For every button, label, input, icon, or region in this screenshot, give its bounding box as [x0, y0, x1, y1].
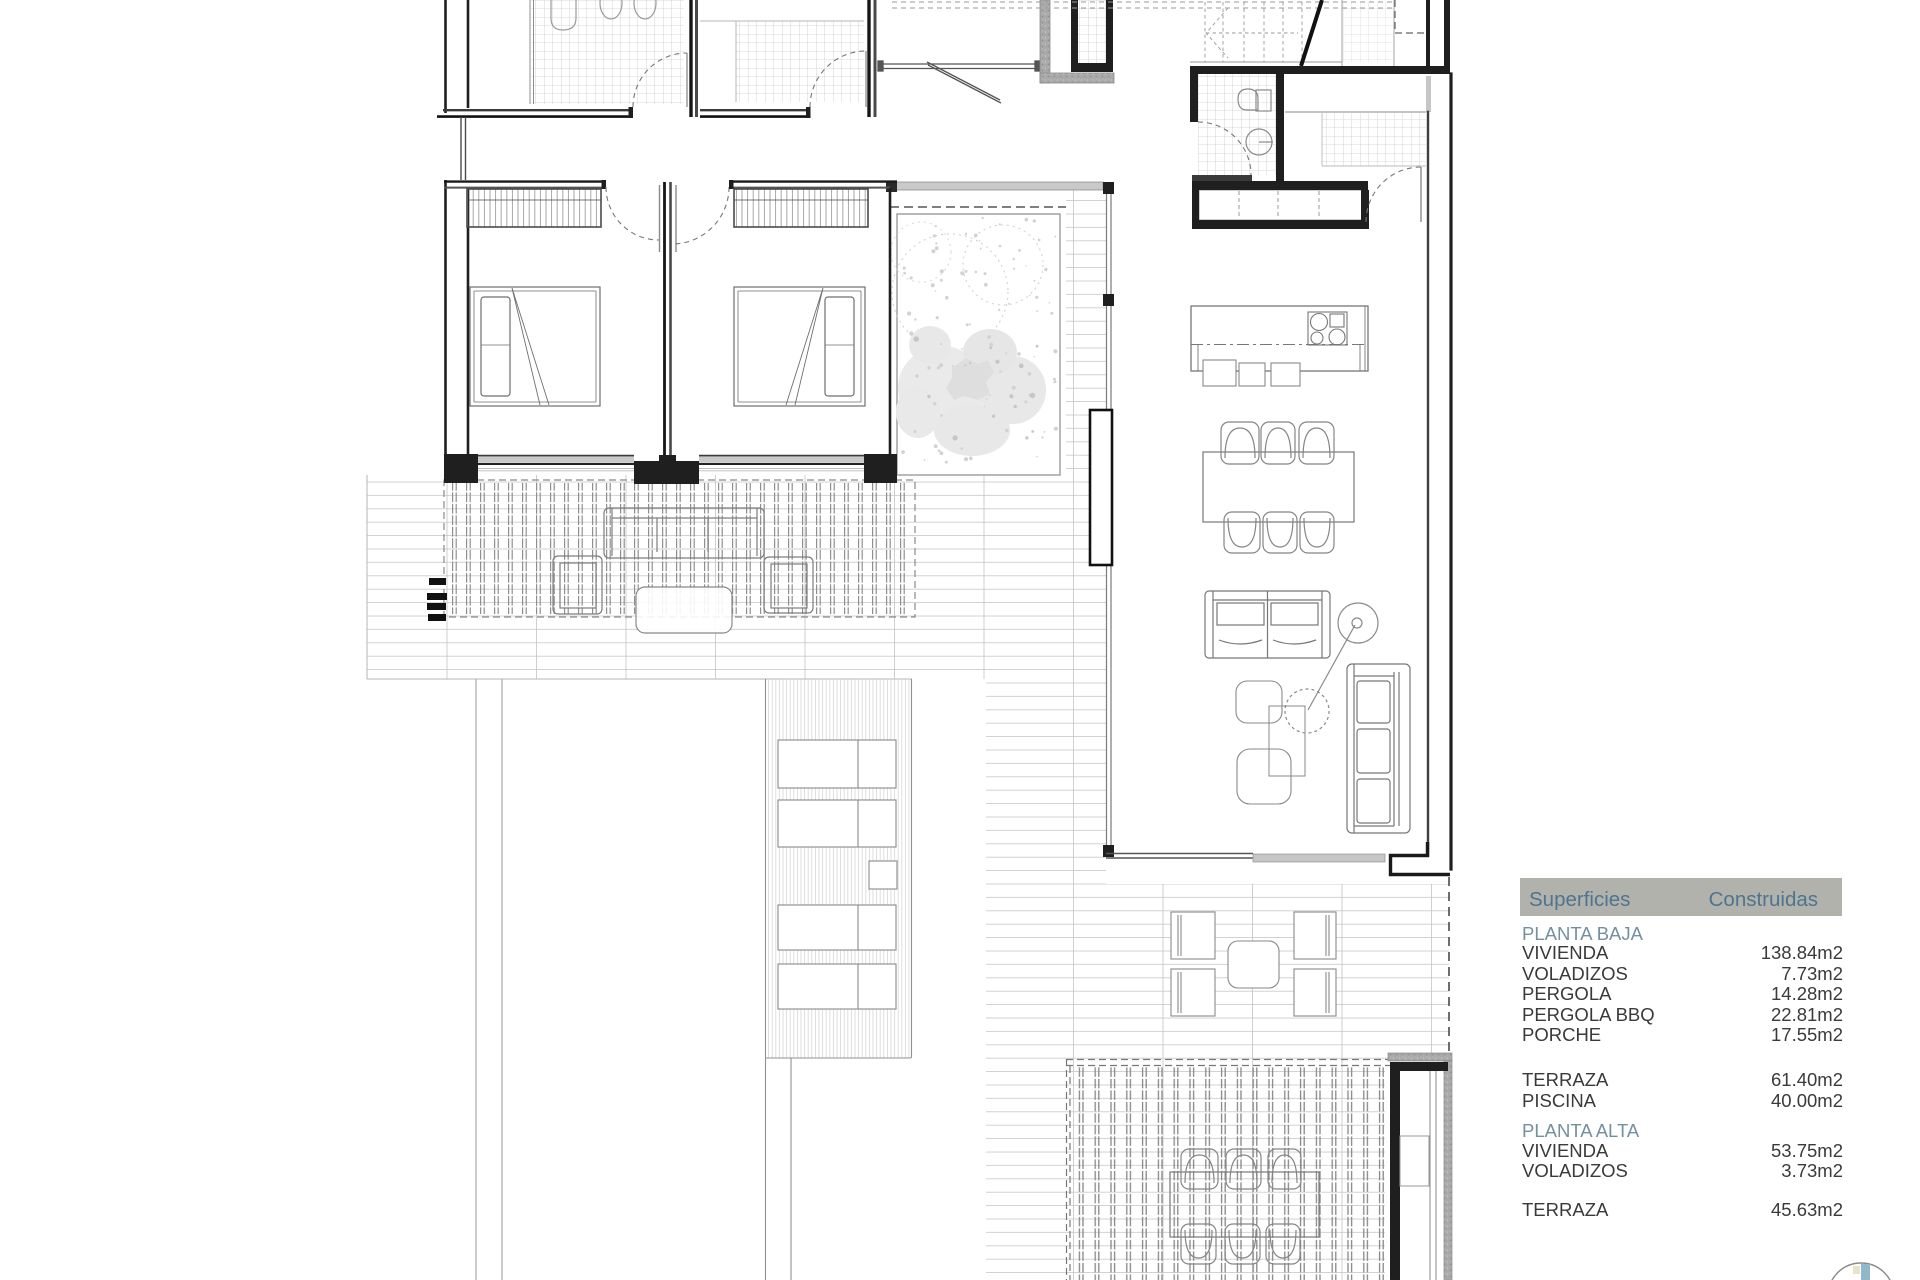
svg-text:Construidas: Construidas [1709, 888, 1818, 911]
svg-text:7.73m2: 7.73m2 [1781, 963, 1843, 984]
svg-text:PORCHE: PORCHE [1522, 1024, 1601, 1045]
svg-text:PERGOLA: PERGOLA [1522, 983, 1612, 1004]
svg-text:61.40m2: 61.40m2 [1771, 1069, 1843, 1090]
svg-text:TERRAZA: TERRAZA [1522, 1069, 1609, 1090]
svg-text:3.73m2: 3.73m2 [1781, 1160, 1843, 1181]
svg-text:VOLADIZOS: VOLADIZOS [1522, 963, 1628, 984]
svg-text:22.81m2: 22.81m2 [1771, 1004, 1843, 1025]
svg-text:17.55m2: 17.55m2 [1771, 1024, 1843, 1045]
svg-text:PLANTA BAJA: PLANTA BAJA [1522, 923, 1644, 944]
svg-text:40.00m2: 40.00m2 [1771, 1090, 1843, 1111]
svg-text:53.75m2: 53.75m2 [1771, 1140, 1843, 1161]
svg-text:VIVIENDA: VIVIENDA [1522, 942, 1609, 963]
svg-text:VIVIENDA: VIVIENDA [1522, 1140, 1609, 1161]
svg-text:14.28m2: 14.28m2 [1771, 983, 1843, 1004]
svg-text:45.63m2: 45.63m2 [1771, 1199, 1843, 1220]
svg-text:PISCINA: PISCINA [1522, 1090, 1597, 1111]
svg-text:Superficies: Superficies [1529, 888, 1630, 911]
svg-text:PLANTA ALTA: PLANTA ALTA [1522, 1120, 1640, 1141]
svg-text:TERRAZA: TERRAZA [1522, 1199, 1609, 1220]
svg-text:VOLADIZOS: VOLADIZOS [1522, 1160, 1628, 1181]
svg-text:PERGOLA BBQ: PERGOLA BBQ [1522, 1004, 1655, 1025]
svg-text:138.84m2: 138.84m2 [1761, 942, 1843, 963]
